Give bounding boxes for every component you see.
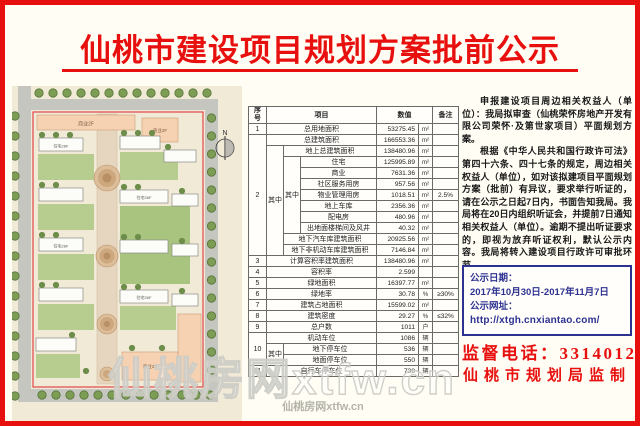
row-remark — [433, 322, 459, 333]
tree-icon — [12, 132, 19, 140]
tree-icon — [12, 292, 19, 300]
header-seq: 序号 — [249, 107, 267, 124]
tree-icon — [133, 89, 141, 97]
tree-icon — [179, 288, 185, 294]
tree-icon — [178, 391, 186, 399]
tree-icon — [12, 272, 19, 280]
tree-icon — [192, 391, 200, 399]
row-item: 商业 — [301, 168, 377, 179]
row-unit: m² — [419, 256, 433, 267]
row-item: 社区服务用房 — [301, 179, 377, 190]
tree-icon — [121, 234, 127, 240]
site-plan-svg: 商业2F 商业2F 商业2F 住宅26F 住宅26F 住宅26F — [12, 86, 242, 421]
header-item: 项目 — [267, 107, 377, 124]
tree-icon — [39, 282, 45, 288]
row-item: 出地面楼梯间及风井 — [301, 223, 377, 234]
tree-icon — [83, 368, 89, 374]
tree-icon — [159, 345, 165, 351]
watermark-small: 仙桃房网xtfw.cn — [238, 398, 408, 414]
publication-url-label: 公示网址： — [470, 300, 624, 314]
tree-icon — [105, 89, 113, 97]
tree-icon — [189, 89, 197, 97]
row-unit: 辆 — [419, 344, 433, 355]
tree-icon — [207, 294, 215, 302]
row-item: 建筑占地面积 — [267, 300, 377, 311]
tree-icon — [203, 89, 211, 97]
tree-icon — [91, 89, 99, 97]
row-value: 53275.45 — [377, 124, 419, 135]
table-row: 2 总建筑面积 166553.36 m² — [249, 135, 459, 146]
row-seq: 3 — [249, 256, 267, 267]
tree-icon — [12, 312, 19, 320]
row-unit: m² — [419, 300, 433, 311]
header-remark: 备注 — [433, 107, 459, 124]
tree-icon — [135, 234, 141, 240]
row-value: 536 — [377, 344, 419, 355]
table-row: 5 绿地面积 16397.77 m² — [249, 278, 459, 289]
tree-icon — [12, 372, 19, 380]
row-unit: m² — [419, 146, 433, 157]
residential-label: 住宅26F — [54, 243, 69, 249]
tree-icon — [39, 182, 45, 188]
tree-icon — [179, 188, 185, 194]
tree-icon — [12, 212, 19, 220]
tree-icon — [53, 182, 59, 188]
row-seq: 6 — [249, 289, 267, 300]
row-value: 138480.96 — [377, 256, 419, 267]
row-seq: 10 — [249, 333, 267, 366]
row-item: 总户数 — [267, 322, 377, 333]
tree-icon — [206, 391, 214, 399]
table-header-row: 序号 项目 数值 备注 — [249, 107, 459, 124]
tree-icon — [175, 89, 183, 97]
row-remark: ≤32% — [433, 311, 459, 322]
supervision-phone: 监督电话：3314012 — [462, 339, 637, 364]
row-value: 1018.51 — [377, 190, 419, 201]
tree-icon — [207, 168, 215, 176]
zhong-cell: 其中 — [267, 146, 284, 256]
publication-date-value: 2017年10月30日-2017年11月7日 — [470, 286, 624, 300]
row-remark — [433, 212, 459, 223]
table-row: 1 总用地面积 53275.45 m² — [249, 124, 459, 135]
notice-text-panel: 申报建设项目周边相关权益人（单位）：我局拟审查（仙桃荣怀房地产开发有限公司荣怀·… — [462, 95, 632, 271]
table-row: 其中 地上总建筑面积 138480.96 m² — [249, 146, 459, 157]
tree-icon — [66, 391, 74, 399]
row-remark — [433, 267, 459, 278]
tree-icon — [207, 150, 215, 158]
tree-icon — [207, 132, 215, 140]
row-item: 住宅 — [301, 157, 377, 168]
row-seq: 7 — [249, 300, 267, 311]
row-unit: m² — [419, 245, 433, 256]
title-underline — [62, 69, 578, 72]
residential-label: 住宅26F — [137, 194, 152, 200]
row-unit: m² — [419, 212, 433, 223]
row-value: 40.32 — [377, 223, 419, 234]
page-title: 仙桃市建设项目规划方案批前公示 — [5, 25, 635, 70]
tree-icon — [149, 130, 155, 136]
tree-icon — [12, 252, 19, 260]
row-seq: 1 — [249, 124, 267, 135]
row-unit: % — [419, 311, 433, 322]
row-unit: m² — [419, 234, 433, 245]
row-value: 166553.36 — [377, 135, 419, 146]
row-remark: ≥30% — [433, 289, 459, 300]
table-row: 6 绿地率 30.78 % ≥30% — [249, 289, 459, 300]
tree-icon — [12, 112, 19, 120]
row-remark — [433, 344, 459, 355]
table-row: 8 建筑密度 29.27 % ≤32% — [249, 311, 459, 322]
row-item: 绿地率 — [267, 289, 377, 300]
tree-icon — [69, 332, 75, 338]
tree-icon — [122, 391, 130, 399]
tree-icon — [207, 348, 215, 356]
row-seq: 9 — [249, 322, 267, 333]
row-seq: 4 — [249, 267, 267, 278]
tree-icon — [207, 258, 215, 266]
row-remark — [433, 157, 459, 168]
row-value: 2356.36 — [377, 201, 419, 212]
tree-icon — [38, 391, 46, 399]
row-unit: m² — [419, 190, 433, 201]
table-row: 10 机动车位 1086 辆 — [249, 333, 459, 344]
row-seq: 11 — [249, 366, 267, 377]
row-item: 地下汽车库建筑面积 — [284, 234, 377, 245]
row-unit: 辆 — [419, 366, 433, 377]
row-value: 550 — [377, 355, 419, 366]
row-value: 16397.77 — [377, 278, 419, 289]
row-item: 自行车停车位 — [267, 366, 377, 377]
issuer-text: 仙桃市规划局监制 — [463, 364, 631, 385]
row-item: 地下停车位 — [284, 344, 377, 355]
tree-icon — [119, 89, 127, 97]
table-row: 7 建筑占地面积 15599.02 m² — [249, 300, 459, 311]
tree-icon — [135, 130, 141, 136]
tree-icon — [150, 391, 158, 399]
row-item: 机动车位 — [267, 333, 377, 344]
row-item: 地下非机动车库建筑面积 — [284, 245, 377, 256]
tree-icon — [12, 192, 19, 200]
row-remark — [433, 245, 459, 256]
row-unit: % — [419, 289, 433, 300]
row-remark: 2.5% — [433, 190, 459, 201]
tree-icon — [77, 89, 85, 97]
header-value: 数值 — [377, 107, 433, 124]
row-unit: m² — [419, 135, 433, 146]
row-value: 29.27 — [377, 311, 419, 322]
row-item: 总建筑面积 — [267, 135, 377, 146]
row-unit: m² — [419, 223, 433, 234]
row-value: 738 — [377, 366, 419, 377]
tree-icon — [207, 366, 215, 374]
tree-icon — [164, 391, 172, 399]
row-unit: m² — [419, 201, 433, 212]
row-item: 容积率 — [267, 267, 377, 278]
tree-icon — [207, 330, 215, 338]
tree-icon — [12, 352, 19, 360]
tree-icon — [207, 204, 215, 212]
row-value: 30.78 — [377, 289, 419, 300]
publication-url-value: http://xtgh.cnxiantao.com/ — [470, 314, 624, 328]
table-row: 9 总户数 1011 户 — [249, 322, 459, 333]
tree-icon — [39, 132, 45, 138]
row-remark — [433, 223, 459, 234]
row-seq: 8 — [249, 311, 267, 322]
tree-icon — [63, 89, 71, 97]
tree-icon — [12, 392, 19, 400]
row-value: 125995.89 — [377, 157, 419, 168]
tree-icon — [207, 312, 215, 320]
tree-icon — [12, 152, 19, 160]
row-item: 地面停车位 — [284, 355, 377, 366]
row-item: 配电房 — [301, 212, 377, 223]
row-unit: 户 — [419, 322, 433, 333]
row-remark — [433, 278, 459, 289]
tree-icon — [161, 89, 169, 97]
residential-label: 住宅26F — [137, 294, 152, 300]
row-remark — [433, 124, 459, 135]
row-value: 15599.02 — [377, 300, 419, 311]
zhong-cell: 其中 — [284, 157, 301, 234]
row-remark — [433, 234, 459, 245]
publication-info-box: 公示日期： 2017年10月30日-2017年11月7日 公示网址： http:… — [462, 265, 632, 336]
row-value: 1011 — [377, 322, 419, 333]
row-value: 20925.56 — [377, 234, 419, 245]
row-seq: 2 — [249, 135, 267, 256]
public-notice-page: 仙桃市建设项目规划方案批前公示 — [0, 0, 640, 426]
tree-icon — [35, 89, 43, 97]
row-remark — [433, 135, 459, 146]
row-value: 7146.84 — [377, 245, 419, 256]
table-row: 11 自行车停车位 738 辆 — [249, 366, 459, 377]
row-remark — [433, 201, 459, 212]
table-row: 3 计算容积率建筑面积 138480.96 m² — [249, 256, 459, 267]
tree-icon — [12, 332, 19, 340]
tree-icon — [94, 391, 102, 399]
row-item: 地上总建筑面积 — [284, 146, 377, 157]
tree-icon — [207, 276, 215, 284]
row-item: 地上车库 — [301, 201, 377, 212]
tree-icon — [67, 132, 73, 138]
table-row: 4 容积率 2.599 — [249, 267, 459, 278]
tree-icon — [53, 132, 59, 138]
site-plan-map: 商业2F 商业2F 商业2F 住宅26F 住宅26F 住宅26F — [12, 86, 242, 421]
row-unit — [419, 267, 433, 278]
row-remark — [433, 256, 459, 267]
tree-icon — [121, 184, 127, 190]
tree-icon — [52, 391, 60, 399]
row-unit: m² — [419, 278, 433, 289]
row-remark — [433, 300, 459, 311]
row-unit: m² — [419, 179, 433, 190]
tree-icon — [108, 391, 116, 399]
row-value: 480.96 — [377, 212, 419, 223]
notice-paragraph-1: 申报建设项目周边相关权益人（单位）：我局拟审查（仙桃荣怀房地产开发有限公司荣怀·… — [462, 95, 632, 145]
tree-icon — [121, 284, 127, 290]
row-unit: m² — [419, 124, 433, 135]
tree-icon — [207, 240, 215, 248]
row-value: 7631.36 — [377, 168, 419, 179]
tree-icon — [53, 232, 59, 238]
tree-icon — [207, 114, 215, 122]
row-remark — [433, 355, 459, 366]
residential-label: 住宅26F — [54, 143, 69, 149]
publication-date-label: 公示日期： — [470, 272, 624, 286]
row-remark — [433, 179, 459, 190]
table-row: 其中 地下停车位 536 辆 — [249, 344, 459, 355]
tree-icon — [179, 238, 185, 244]
row-unit: m² — [419, 157, 433, 168]
row-value: 1086 — [377, 333, 419, 344]
tree-icon — [49, 89, 57, 97]
tree-icon — [207, 186, 215, 194]
north-label: N — [222, 130, 227, 137]
tree-icon — [39, 232, 45, 238]
tree-icon — [147, 89, 155, 97]
tree-icon — [135, 184, 141, 190]
row-item: 物业管理用房 — [301, 190, 377, 201]
row-value: 957.56 — [377, 179, 419, 190]
row-value: 2.599 — [377, 267, 419, 278]
tree-icon — [135, 284, 141, 290]
row-unit: m² — [419, 168, 433, 179]
row-remark — [433, 366, 459, 377]
row-item: 计算容积率建筑面积 — [267, 256, 377, 267]
notice-paragraph-2: 根据《中华人民共和国行政许可法》第四十六条、四十七条的规定，周边相关权益人（单位… — [462, 145, 632, 271]
tree-icon — [80, 391, 88, 399]
row-seq: 5 — [249, 278, 267, 289]
row-remark — [433, 146, 459, 157]
tree-icon — [129, 345, 135, 351]
row-unit: 辆 — [419, 333, 433, 344]
tree-icon — [165, 144, 171, 150]
row-value: 138480.96 — [377, 146, 419, 157]
tree-icon — [53, 282, 59, 288]
tree-icon — [121, 130, 127, 136]
commercial-label: 商业2F — [143, 363, 158, 370]
planning-indicator-table: 序号 项目 数值 备注 1 总用地面积 53275.45 m² 2 总建筑面积 … — [248, 106, 459, 377]
tree-icon — [12, 172, 19, 180]
tree-icon — [207, 222, 215, 230]
row-item: 总用地面积 — [267, 124, 377, 135]
commercial-label: 商业2F — [78, 121, 94, 128]
zhong-cell: 其中 — [267, 344, 284, 366]
row-unit: 辆 — [419, 355, 433, 366]
tree-icon — [136, 391, 144, 399]
row-item: 绿地面积 — [267, 278, 377, 289]
row-remark — [433, 333, 459, 344]
row-remark — [433, 168, 459, 179]
tree-icon — [12, 232, 19, 240]
row-item: 建筑密度 — [267, 311, 377, 322]
